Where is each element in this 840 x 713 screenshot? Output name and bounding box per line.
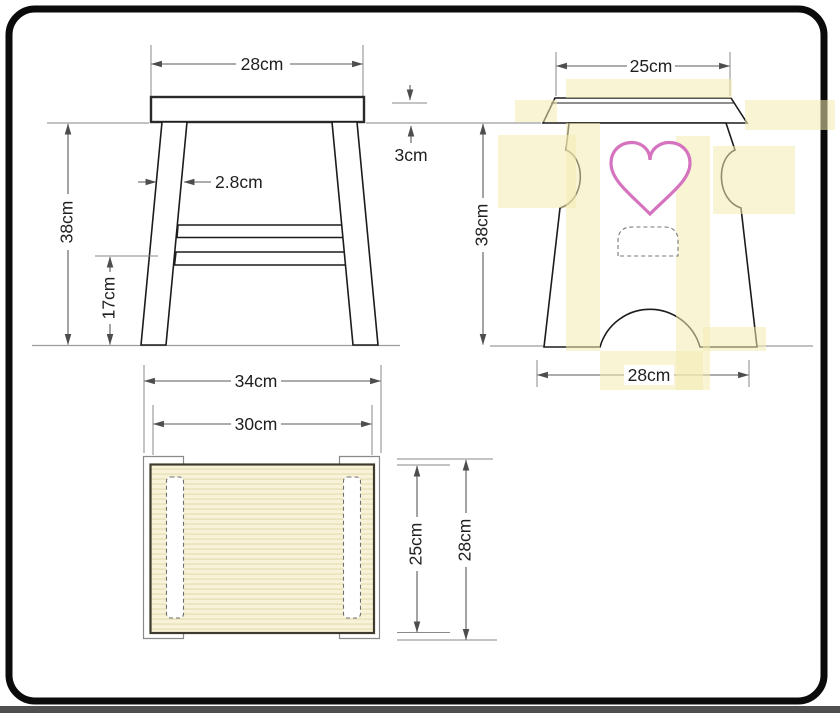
highlight-mark [703, 327, 766, 351]
seat-front [543, 98, 747, 123]
highlight-mark [566, 123, 600, 351]
highlight-mark [515, 100, 557, 122]
dim-label-plan-overall-depth: 28cm [455, 519, 475, 562]
dim-label-leg-thickness: 2.8cm [215, 172, 263, 192]
highlight-mark [745, 100, 835, 130]
stool-technical-drawing: 28cm 2.8cm 38cm 17cm [0, 0, 840, 713]
highlight-mark [498, 135, 576, 208]
dim-label-plan-top-depth: 25cm [406, 523, 426, 566]
side-view: 28cm 2.8cm 38cm 17cm [32, 45, 541, 346]
dim-label-side-top-width: 28cm [241, 54, 284, 74]
page-bottom-edge [0, 706, 840, 713]
dim-label-plan-overall-width: 34cm [235, 371, 278, 391]
dim-label-plan-top-width: 30cm [235, 414, 278, 434]
front-view: 25cm 3cm 38cm 28cm [392, 52, 835, 390]
dim-label-stretcher-height: 17cm [99, 277, 119, 320]
handle-slot-dashed [618, 227, 678, 256]
leg-slot-left [167, 477, 184, 618]
dim-label-front-bottom-width: 28cm [628, 365, 671, 385]
stretcher-lower [175, 252, 348, 265]
stretcher-upper [177, 225, 345, 238]
plan-view: 34cm 30cm 25cm 28cm [143, 365, 497, 640]
drawing-canvas: 28cm 2.8cm 38cm 17cm [0, 0, 840, 713]
dim-label-seat-thickness: 3cm [394, 145, 427, 165]
leg-slot-right [344, 477, 361, 618]
dim-label-front-height: 38cm [472, 204, 492, 247]
dim-label-side-height: 38cm [57, 201, 77, 244]
highlight-mark [713, 146, 795, 214]
seat-side [151, 97, 364, 122]
dim-label-front-top-width: 25cm [630, 56, 673, 76]
highlight-mark [566, 79, 732, 98]
